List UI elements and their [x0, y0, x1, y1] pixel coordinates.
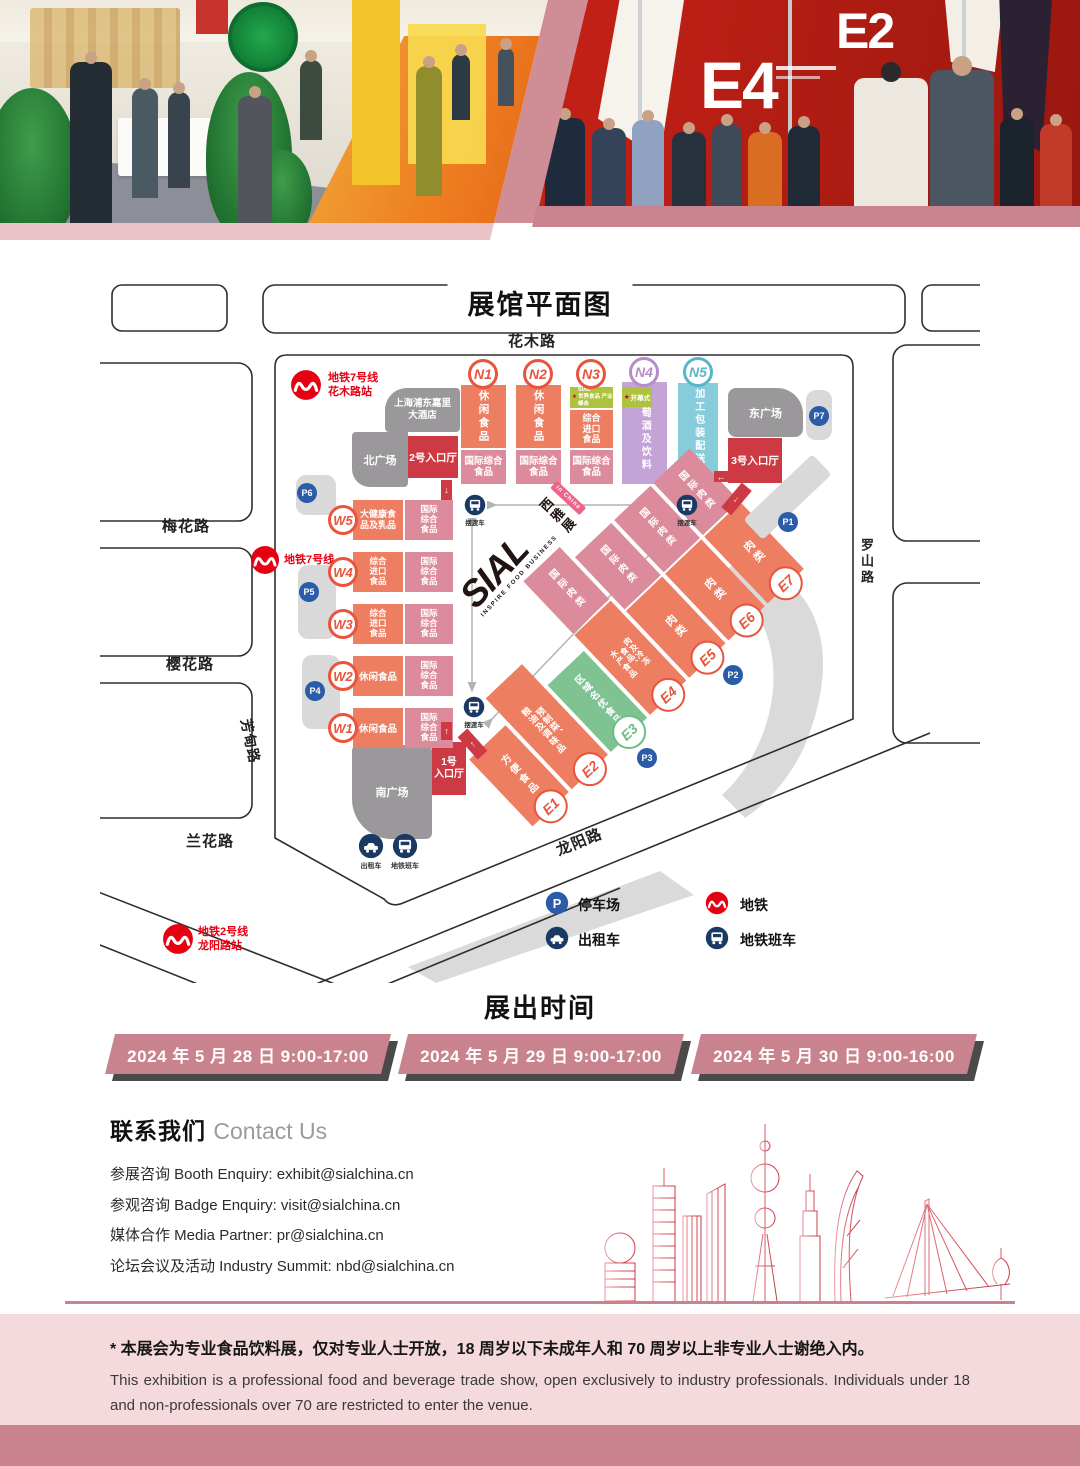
parking-p4: P4 [305, 681, 325, 701]
photo-yellow-pillar [352, 0, 400, 185]
road-label-meihua: 梅花路 [162, 515, 210, 536]
photo-person [748, 132, 782, 206]
hall-badge-n5: N5 [683, 357, 713, 387]
north-plaza: 北广场 [352, 432, 408, 487]
photo-banner-e4-text: E4 [700, 52, 777, 118]
photo-banner-subtext [776, 66, 836, 70]
road-label-luoshan: 罗山路 [857, 538, 876, 586]
metro-line7-label: 地铁7号线 [284, 553, 334, 567]
contact-line-badge: 参观咨询 Badge Enquiry: visit@sialchina.cn [110, 1191, 455, 1222]
hall-w4-main: 综合 进口 食品 [353, 552, 403, 592]
footer-band [0, 1425, 1080, 1466]
photo-person [1040, 124, 1072, 206]
shuttle-label: 摆渡车 [670, 517, 704, 527]
photo-person [592, 128, 626, 206]
hall-badge-w2: W2 [328, 661, 358, 691]
svg-text:P: P [553, 896, 562, 911]
bus-icon [705, 926, 729, 955]
disclaimer-en: This exhibition is a professional food a… [110, 1368, 970, 1418]
photo-person [498, 48, 514, 106]
taxi-icon [545, 926, 569, 955]
hall-badge-n2: N2 [523, 359, 553, 389]
schedule-title: 展出时间 [0, 988, 1080, 1025]
photo-person [788, 126, 820, 206]
parking-p2: P2 [723, 665, 743, 685]
hall-n4-tag: ★开幕式 [622, 387, 652, 407]
photo-red-sign [196, 0, 228, 34]
shuttle-bus-icon [392, 833, 418, 864]
date-banner-text: 2024 年 5 月 29 日 9:00-17:00 [403, 1034, 679, 1074]
metro-line7-station-label: 地铁7号线 花木路站 [328, 371, 378, 400]
hall-w1-main: 休闲食品 [353, 708, 403, 748]
hall-badge-w5: W5 [328, 505, 358, 535]
hall-n1-sub: 国际综合 食品 [461, 450, 506, 484]
hall-badge-n4: N4 [629, 357, 659, 387]
hall-badge-w4: W4 [328, 557, 358, 587]
road-label-lanhua: 兰花路 [186, 830, 234, 851]
photo-person [452, 54, 470, 120]
photo-banner-e2-text: E2 [836, 6, 893, 56]
star-icon: ★ [572, 394, 577, 401]
contact-lines: 参展咨询 Booth Enquiry: exhibit@sialchina.cn… [110, 1160, 455, 1282]
parking-p3: P3 [637, 748, 657, 768]
entrance-hall-2: 2号入口厅 [408, 436, 458, 478]
map-title: 展馆平面图 [448, 283, 633, 322]
contact-section: 联系我们 Contact Us 参展咨询 Booth Enquiry: exhi… [0, 1108, 1080, 1300]
photo-green-logo [228, 2, 298, 72]
disclaimer-box: * 本展会为专业食品饮料展，仅对专业人士开放，18 周岁以下未成年人和 70 周… [0, 1314, 1080, 1425]
contact-line-media: 媒体合作 Media Partner: pr@sialchina.cn [110, 1221, 455, 1252]
photo-person [300, 60, 322, 140]
photo-plant [0, 88, 78, 243]
road-label-huamu: 花木路 [508, 330, 556, 351]
date-banner: 2024 年 5 月 28 日 9:00-17:00 [110, 1034, 386, 1074]
schedule-banners: 2024 年 5 月 28 日 9:00-17:00 2024 年 5 月 29… [110, 1034, 972, 1074]
left-arrow-icon: ← [714, 471, 728, 482]
brochure-page: E4 E2 展馆平面图 [0, 0, 1080, 1466]
down-arrow-icon: ↓ [441, 480, 452, 500]
parking-icon: P [545, 891, 569, 920]
photo-person [168, 92, 190, 188]
legend-taxi-label: 出租车 [578, 930, 620, 950]
shuttle-label: 摆渡车 [457, 719, 491, 729]
photo-person [712, 124, 742, 206]
date-banner: 2024 年 5 月 30 日 9:00-16:00 [696, 1034, 972, 1074]
metro-icon [162, 923, 194, 960]
hall-w4-sub: 国际 综合 食品 [405, 552, 453, 592]
shuttle-label: 摆渡车 [458, 517, 492, 527]
east-plaza: 东广场 [728, 388, 803, 437]
legend-parking-label: 停车场 [578, 895, 620, 915]
metro-icon [250, 545, 280, 580]
section-divider [65, 1301, 1015, 1304]
photo-person [416, 66, 442, 196]
parking-p5: P5 [299, 582, 319, 602]
hall-badge-w1: W1 [328, 713, 358, 743]
photo-person-white-jacket [854, 78, 928, 206]
contact-title-cn: 联系我们 [110, 1118, 213, 1144]
header-photos: E4 E2 [0, 0, 1080, 240]
floorplan-map: 花木路 梅花路 樱花路 兰花路 芳甸路 罗山路 龙阳路 地铁7号线 花木路站 地… [100, 283, 980, 983]
photo-person [1000, 118, 1034, 206]
photo-banner-subtext [776, 76, 820, 79]
photo-person [238, 96, 272, 240]
parking-p1: P1 [778, 512, 798, 532]
parking-p7: P7 [809, 406, 829, 426]
hall-w3-main: 综合 进口 食品 [353, 604, 403, 644]
hall-n2-main: 休闲食品 [516, 385, 561, 448]
shanghai-skyline-art [595, 1116, 1015, 1306]
legend-metro-label: 地铁 [740, 895, 768, 915]
photo-person [672, 132, 706, 206]
hall-badge-n1: N1 [468, 359, 498, 389]
taxi-label: 出租车 [354, 861, 388, 871]
hall-n2-sub: 国际综合 食品 [516, 450, 561, 484]
hall-w5-main: 大健康食 品及乳品 [353, 500, 403, 540]
south-plaza: 南广场 [352, 745, 432, 839]
date-banner-text: 2024 年 5 月 30 日 9:00-16:00 [696, 1034, 972, 1074]
parking-p6: P6 [297, 483, 317, 503]
taxi-icon [358, 833, 384, 864]
date-banner: 2024 年 5 月 29 日 9:00-17:00 [403, 1034, 679, 1074]
hall-badge-w3: W3 [328, 609, 358, 639]
shuttle-bus-label: 地铁班车 [388, 861, 422, 871]
hall-n3-main: 综合 进口 食品 [570, 410, 613, 448]
hall-w5-sub: 国际 综合 食品 [405, 500, 453, 540]
hall-badge-n3: N3 [576, 359, 606, 389]
photo-person [70, 62, 112, 240]
hall-n3-tag: ★SIAL 世界食品 产业峰会 [570, 387, 613, 408]
metro-line2-station-label: 地铁2号线 龙阳路站 [198, 925, 248, 954]
hotel-block: 上海浦东嘉里 大酒店 [385, 388, 460, 432]
disclaimer-cn: * 本展会为专业食品饮料展，仅对专业人士开放，18 周岁以下未成年人和 70 周… [110, 1335, 970, 1359]
up-arrow-icon: ↑ [441, 722, 452, 740]
metro-icon [705, 891, 729, 920]
contact-title: 联系我们 Contact Us [110, 1112, 327, 1146]
legend-bus-label: 地铁班车 [740, 930, 796, 950]
photo-person [132, 88, 158, 198]
photo-person [632, 120, 664, 206]
photo-person [930, 70, 994, 206]
road-label-yinghua: 樱花路 [166, 653, 214, 674]
contact-line-summit: 论坛会议及活动 Industry Summit: nbd@sialchina.c… [110, 1252, 455, 1283]
contact-line-booth: 参展咨询 Booth Enquiry: exhibit@sialchina.cn [110, 1160, 455, 1191]
metro-icon [290, 369, 322, 406]
contact-title-en: Contact Us [213, 1118, 327, 1144]
hall-n1-main: 休闲食品 [461, 385, 506, 448]
date-banner-text: 2024 年 5 月 28 日 9:00-17:00 [110, 1034, 386, 1074]
star-icon: ★ [624, 393, 630, 401]
